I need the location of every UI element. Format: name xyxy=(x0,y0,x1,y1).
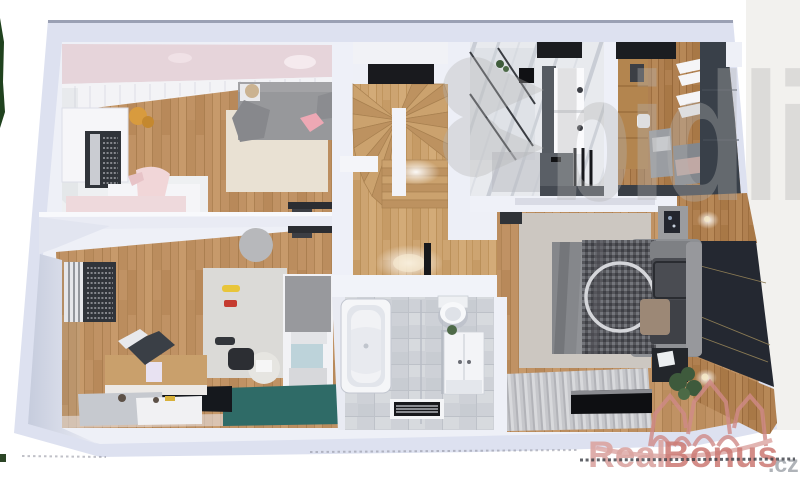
svg-text:Real: Real xyxy=(588,434,666,475)
svg-text:bidli: bidli xyxy=(548,37,800,240)
svg-text:Bonus: Bonus xyxy=(663,434,778,475)
svg-text:.cz: .cz xyxy=(768,451,799,477)
